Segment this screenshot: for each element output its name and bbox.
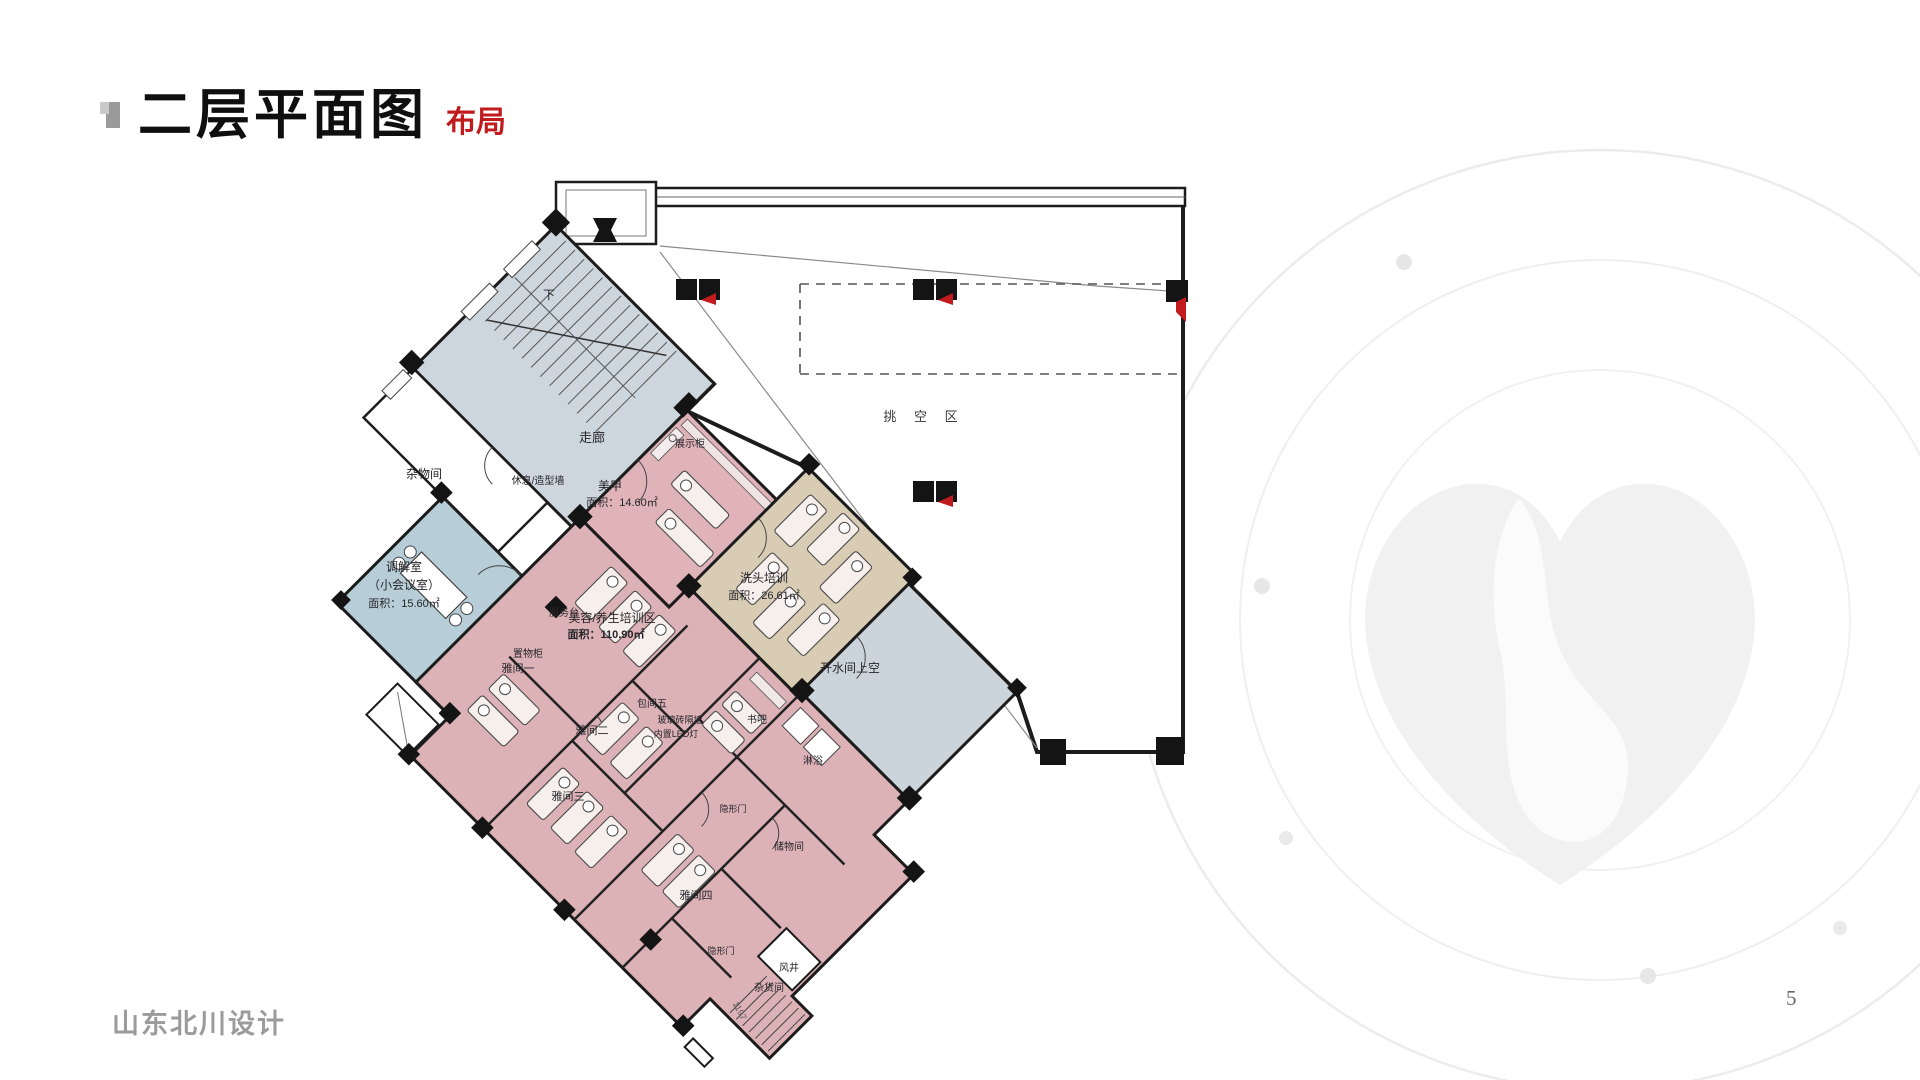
watermark-node: [1833, 921, 1847, 935]
plan-label-hair-wash-area: 面积：26.61㎡: [728, 589, 800, 602]
plan-label-private-room-1: 雅间一: [502, 661, 535, 675]
plan-label-storage-cabinet: 置物柜: [513, 647, 543, 660]
plan-label-sundry-room: 杂货间: [754, 981, 784, 994]
plan-label-water-room-void: 开水间上空: [820, 661, 880, 675]
watermark-node: [1254, 578, 1270, 594]
plan-label-beauty-training-zone: 美容/养生培训区: [568, 610, 655, 625]
plan-label-hair-wash-training: 洗头培训: [740, 570, 788, 585]
title-bullet-icon: [100, 102, 120, 128]
plan-label-private-room-2: 雅间二: [576, 723, 609, 737]
plan-label-hidden-door-1: 隐形门: [719, 803, 746, 814]
watermark-node: [1279, 831, 1293, 845]
plan-label-small-meeting-room: （小会议室）: [368, 577, 440, 592]
plan-label-storage-room: 杂物间: [406, 467, 442, 481]
plan-label-book-bar: 书吧: [747, 714, 767, 726]
plan-label-beauty-training-area: 面积：110.90㎡: [567, 627, 644, 641]
watermark-node: [1396, 254, 1412, 270]
plan-label-air-shaft: 风井: [779, 961, 799, 974]
plan-label-corridor: 走廊: [579, 430, 605, 445]
plan-label-storeroom: 储物间: [774, 840, 804, 853]
plan-label-hidden-door-2: 隐形门: [707, 945, 734, 956]
plan-label-nail-room: 美甲: [598, 479, 622, 493]
plan-label-shower: 淋浴: [803, 754, 823, 767]
plan-label-led-light: 内置LED灯: [654, 728, 699, 739]
plan-label-glass-brick-wall: 玻璃砖隔墙: [657, 714, 702, 725]
plan-label-rest-styling-wall: 休息/造型墙: [512, 474, 565, 487]
page-title: 二层平面图: [138, 88, 428, 142]
plan-label-nail-room-area: 面积：14.60㎡: [586, 496, 658, 509]
plan-label-mediation-area: 面积：15.60㎡: [368, 597, 440, 610]
watermark-logo: [1130, 150, 1920, 1080]
plan-label-stair-down: 下: [543, 288, 555, 302]
watermark-node: [1640, 968, 1656, 984]
plan-label-mediation-room: 调解室: [386, 559, 422, 574]
footer-brand: 山东北川设计: [112, 1002, 286, 1041]
title-block: 二层平面图 布局: [100, 88, 506, 142]
plan-label-private-room-5: 包间五: [637, 697, 667, 710]
page-number: 5: [1786, 986, 1797, 1011]
floor-plan: 下走廊杂物间休息/造型墙展示柜美甲面积：14.60㎡洗头培训面积：26.61㎡调…: [0, 0, 1920, 1080]
plan-label-void-area: 挑 空 区: [883, 409, 964, 424]
plan-label-display-cabinet: 展示柜: [675, 437, 705, 450]
slide: 二层平面图 布局 山东北川设计 5: [0, 0, 1920, 1080]
plan-label-private-room-4: 雅间四: [680, 888, 713, 902]
plan-label-private-room-3: 雅间三: [552, 789, 585, 803]
page-subtitle: 布局: [446, 108, 506, 138]
